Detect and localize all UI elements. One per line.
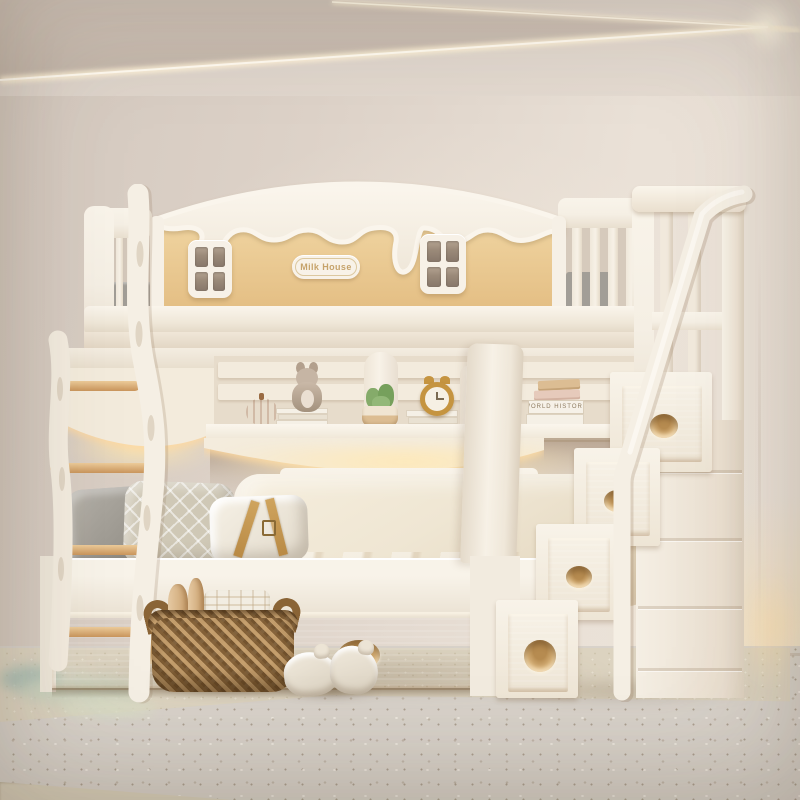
window-decor-right [420,234,466,294]
room-scene: Milk House WORLD HISTORY [0,0,800,800]
window-pane [427,241,441,262]
stringer-slot [58,557,64,581]
headboard-side-rail-right [552,216,566,318]
badge-label: Milk House [300,262,352,272]
plush-fox-belly [301,390,314,408]
stringer-slot [59,467,65,491]
step-handle [524,640,556,672]
book-spine-label: WORLD HISTORY [528,404,584,410]
window-pane [446,267,460,288]
stair-handrail [590,182,760,702]
footboard-slat [572,226,582,314]
window-pane [213,247,226,267]
strap-buckle [262,520,276,536]
stringer-slot [137,241,144,267]
woven-basket [152,618,294,692]
front-right-post [460,343,524,565]
clock-hand [437,398,444,400]
book [408,417,458,424]
stringer-slot [57,377,63,401]
window-pane [195,247,208,267]
brand-badge: Milk House [292,255,360,279]
stringer-slot [137,595,144,621]
pumpkin-decor [246,398,278,425]
window-pane [213,272,226,292]
window-pane [427,267,441,288]
stringer-slot [148,415,155,441]
window-pane [195,272,208,292]
stringer-slot [144,505,151,531]
step-handle [566,566,592,588]
stringer-slot [136,321,143,347]
book-spine: WORLD HISTORY [528,400,584,414]
window-pane [446,241,460,262]
window-decor-left [188,240,232,298]
